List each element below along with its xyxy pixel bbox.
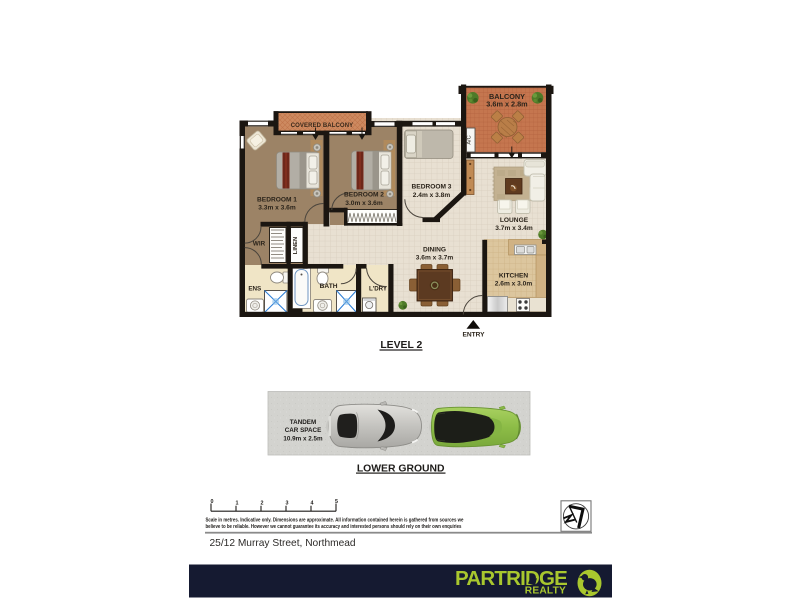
svg-text:LOUNGE: LOUNGE [500,217,529,224]
svg-text:3.6m x 2.8m: 3.6m x 2.8m [486,100,528,109]
svg-text:2.6m x 3.0m: 2.6m x 3.0m [495,281,533,288]
svg-text:TANDEM: TANDEM [290,419,316,426]
svg-text:25/12 Murray Street, Northmead: 25/12 Murray Street, Northmead [210,538,356,549]
svg-text:BEDROOM 1: BEDROOM 1 [257,196,297,203]
svg-text:3.0m x 3.6m: 3.0m x 3.6m [345,200,383,207]
svg-text:L'DRY: L'DRY [369,286,388,293]
svg-text:LINEN: LINEN [293,237,299,254]
svg-text:KITCHEN: KITCHEN [499,272,529,279]
svg-text:ENS: ENS [248,285,261,292]
svg-text:REALTY: REALTY [525,586,566,597]
svg-text:BEDROOM 3: BEDROOM 3 [412,184,452,191]
svg-text:4: 4 [311,501,314,507]
svg-text:A/C: A/C [467,135,473,144]
svg-text:DINING: DINING [423,246,446,253]
svg-text:Scale in metres. Indicative on: Scale in metres. Indicative only. Dimens… [206,518,464,524]
svg-text:3.7m x 3.4m: 3.7m x 3.4m [495,225,533,232]
svg-text:BATH: BATH [320,283,338,290]
svg-text:believe to be reliable. Howeve: believe to be reliable. However we canno… [206,524,462,530]
svg-text:5: 5 [335,499,338,505]
svg-text:COVERED BALCONY: COVERED BALCONY [291,123,354,129]
svg-text:LEVEL 2: LEVEL 2 [380,340,422,351]
svg-text:3: 3 [286,501,289,507]
svg-text:BEDROOM 2: BEDROOM 2 [344,192,384,199]
svg-text:3.3m x 3.6m: 3.3m x 3.6m [258,205,296,212]
svg-text:1: 1 [236,501,239,507]
svg-text:0: 0 [211,499,214,505]
svg-text:ENTRY: ENTRY [462,332,485,339]
svg-text:2: 2 [261,501,264,507]
svg-text:10.9m x 2.5m: 10.9m x 2.5m [283,435,323,442]
svg-text:3.6m x 3.7m: 3.6m x 3.7m [416,255,454,262]
svg-text:CAR SPACE: CAR SPACE [285,427,322,434]
svg-text:2.4m x 3.8m: 2.4m x 3.8m [413,192,451,199]
svg-text:WIR: WIR [253,240,266,247]
